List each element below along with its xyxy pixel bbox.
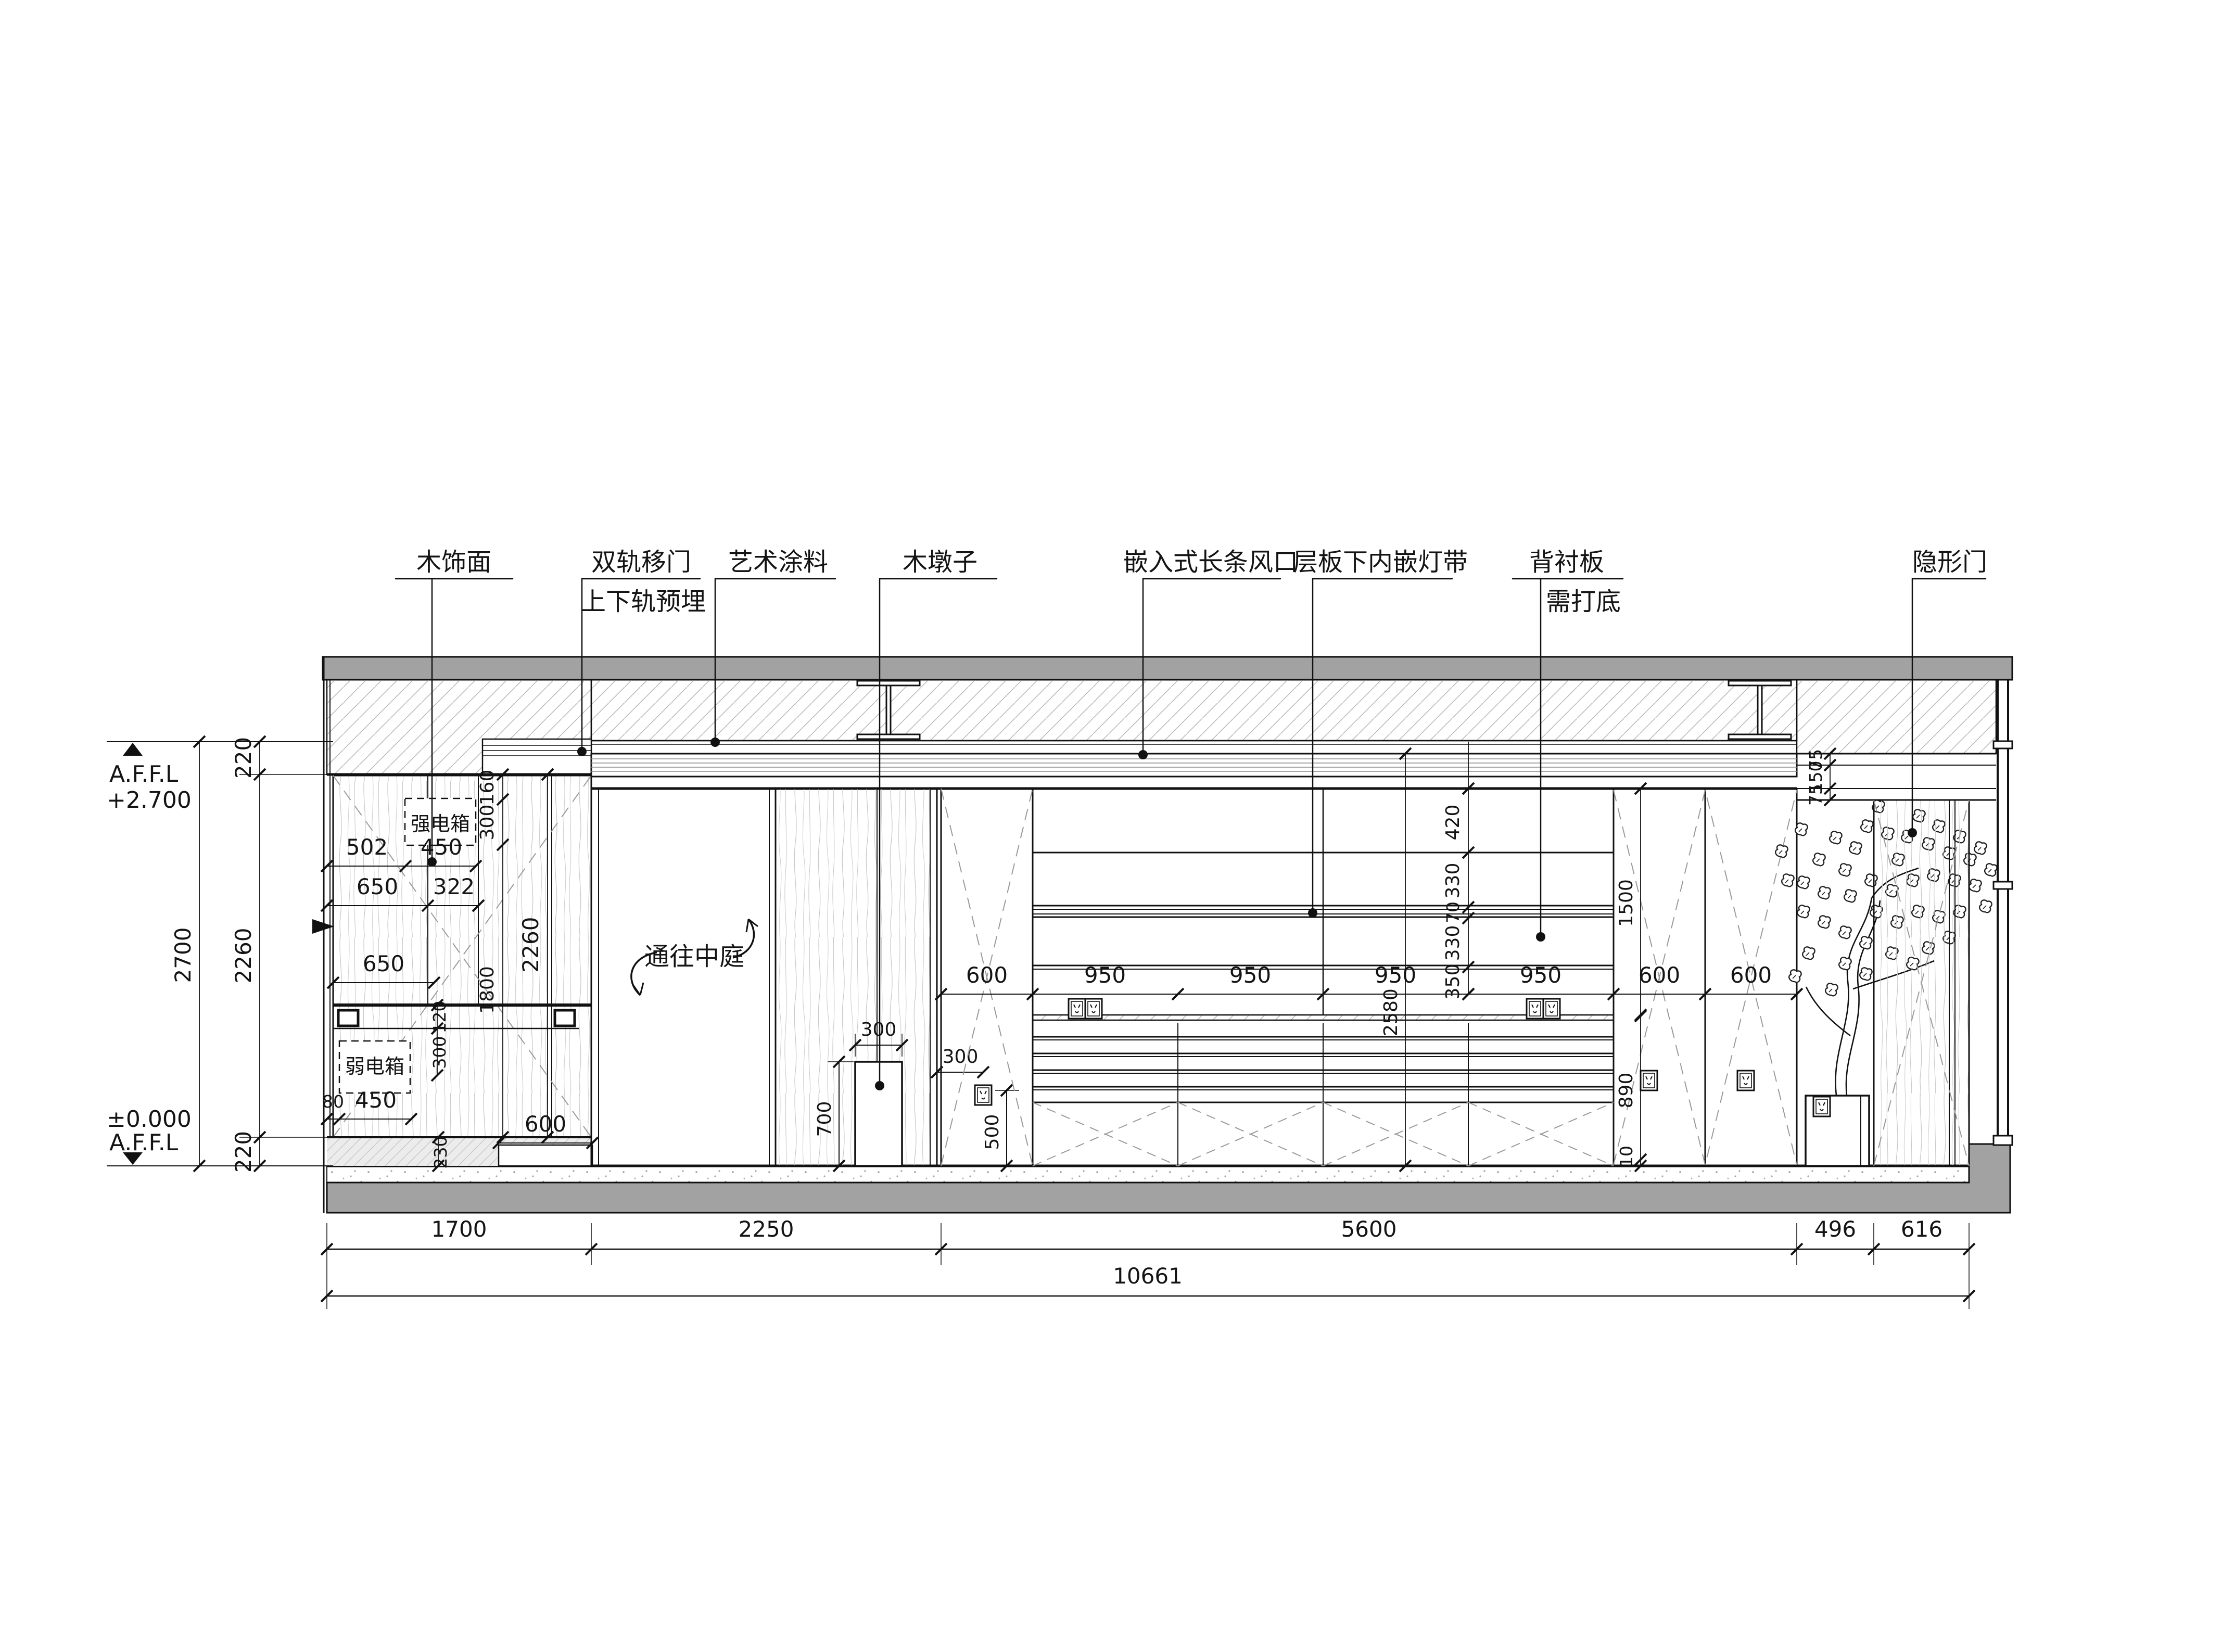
label-backing-board: 背衬板 — [1529, 548, 1604, 577]
dim-block-height: 700 — [814, 1101, 835, 1137]
toe-kick-notch — [499, 1145, 592, 1166]
dim-120: 120 — [429, 1001, 450, 1034]
label-linear-vent: 嵌入式长条风口 — [1123, 548, 1298, 577]
dim-bay: 600 — [1730, 962, 1772, 988]
strong-electric-box-label: 强电箱 — [411, 812, 470, 835]
dim-300b: 300 — [429, 1036, 450, 1069]
socket-with-dims: 300 500 — [931, 1046, 1019, 1172]
dim-10661: 10661 — [1113, 1263, 1183, 1289]
shelf-stack-dims: 420 330 70 330 350 2580 1500 890 10 — [1380, 742, 1646, 1172]
dim-496: 496 — [1814, 1216, 1856, 1242]
dim-650b: 650 — [363, 951, 404, 976]
dim-bay: 950 — [1229, 962, 1271, 988]
atrium-note: 通往中庭 — [644, 942, 744, 971]
interior-elevation-svg: 强电箱 弱电箱 通往中庭 300 700 300 — [0, 0, 2222, 1652]
dim-220-top: 220 — [231, 737, 256, 779]
top-slab-band — [323, 657, 2012, 680]
ceiling-hatch-center — [591, 680, 1797, 741]
socket-icon — [1737, 1071, 1754, 1090]
dim-2260-inner: 2260 — [518, 917, 543, 973]
atrium-opening: 通往中庭 — [591, 789, 776, 1166]
dim-2260: 2260 — [231, 928, 256, 984]
label-hidden-door: 隐形门 — [1912, 548, 1987, 577]
dim-160: 160 — [477, 770, 498, 806]
label-wood-block: 木墩子 — [903, 548, 977, 577]
double-socket-icon — [1527, 999, 1560, 1019]
dim-1700: 1700 — [431, 1216, 487, 1242]
dim-bay: 600 — [1639, 962, 1680, 988]
label-art-paint: 艺术涂料 — [728, 548, 828, 577]
ceiling-hatch-right — [1797, 680, 1996, 754]
dim-socket-height: 500 — [982, 1114, 1003, 1150]
dim-450: 450 — [421, 834, 462, 860]
dim-2700: 2700 — [170, 927, 196, 983]
track-pocket — [483, 739, 591, 774]
dim-10: 10 — [1616, 1146, 1636, 1167]
linear-vent-band — [591, 754, 1797, 777]
slat-shelves — [1033, 1023, 1614, 1102]
dim-block-width: 300 — [861, 1019, 897, 1040]
dim-616: 616 — [1901, 1216, 1942, 1242]
dim-bay: 950 — [1375, 962, 1416, 988]
screed-band — [327, 1166, 1969, 1183]
double-socket-icon — [1069, 999, 1102, 1019]
dim-300a: 300 — [477, 805, 498, 841]
wood-block — [855, 1062, 902, 1166]
socket-icon — [1641, 1071, 1657, 1090]
dim-1800: 1800 — [477, 966, 498, 1014]
dim-230: 230 — [430, 1136, 451, 1169]
dim-220-bottom: 220 — [231, 1131, 256, 1173]
dim-890: 890 — [1616, 1073, 1637, 1109]
annotation-labels: 木饰面 双轨移门 上下轨预埋 艺术涂料 木墩子 嵌入式长条风口 层板下内嵌灯带 … — [396, 548, 1987, 1090]
label-track-embed: 上下轨预埋 — [581, 587, 706, 616]
bay-dimension-row: 600 950 950 950 950 600 600 — [935, 962, 1802, 1000]
dim-head: 75 — [1806, 784, 1826, 806]
base-cabinets — [1033, 1102, 1614, 1166]
level-triangle-up-icon — [123, 743, 143, 756]
dim-1500: 1500 — [1616, 879, 1637, 927]
wood-panel-with-block: 300 700 — [776, 789, 937, 1172]
socket-icon — [975, 1085, 992, 1105]
dim-stack: 420 — [1442, 805, 1464, 841]
level-bottom-value: ±0.000 — [107, 1106, 192, 1133]
dim-bay: 950 — [1520, 962, 1561, 988]
dim-80: 80 — [322, 1091, 344, 1112]
dim-stack: 330 — [1442, 925, 1464, 961]
dim-stack: 70 — [1443, 901, 1463, 923]
dim-bay: 600 — [966, 962, 1008, 988]
level-markers: A.F.F.L +2.700 ±0.000 A.F.F.L 2700 220 2… — [107, 736, 333, 1173]
label-shelf-light-strip: 层板下内嵌灯带 — [1293, 548, 1468, 577]
dim-2580: 2580 — [1380, 988, 1402, 1036]
dim-502: 502 — [346, 834, 388, 860]
level-bottom-label: A.F.F.L — [109, 1129, 179, 1156]
dim-650a: 650 — [357, 874, 398, 899]
dim-600-toe: 600 — [525, 1111, 566, 1137]
socket-icon — [1813, 1097, 1830, 1116]
label-double-track-door: 双轨移门 — [591, 548, 691, 577]
label-needs-priming: 需打底 — [1546, 587, 1621, 616]
dim-5600: 5600 — [1341, 1216, 1397, 1242]
weak-electric-box-label: 弱电箱 — [345, 1055, 404, 1078]
dim-socket-offset: 300 — [943, 1046, 979, 1068]
dim-stack: 330 — [1442, 863, 1464, 899]
dim-322: 322 — [433, 874, 475, 899]
elevation-drawing-canvas: 强电箱 弱电箱 通往中庭 300 700 300 — [0, 0, 2222, 1652]
level-top-value: +2.700 — [107, 787, 192, 814]
dim-450b: 450 — [355, 1087, 397, 1113]
dim-stack: 350 — [1442, 964, 1464, 1000]
dim-2250: 2250 — [739, 1216, 794, 1242]
dim-bay: 950 — [1084, 962, 1126, 988]
bottom-dimensions: 1700 2250 5600 496 616 10661 — [321, 1216, 1975, 1309]
level-top-label: A.F.F.L — [109, 761, 179, 787]
label-wood-veneer: 木饰面 — [416, 548, 491, 577]
